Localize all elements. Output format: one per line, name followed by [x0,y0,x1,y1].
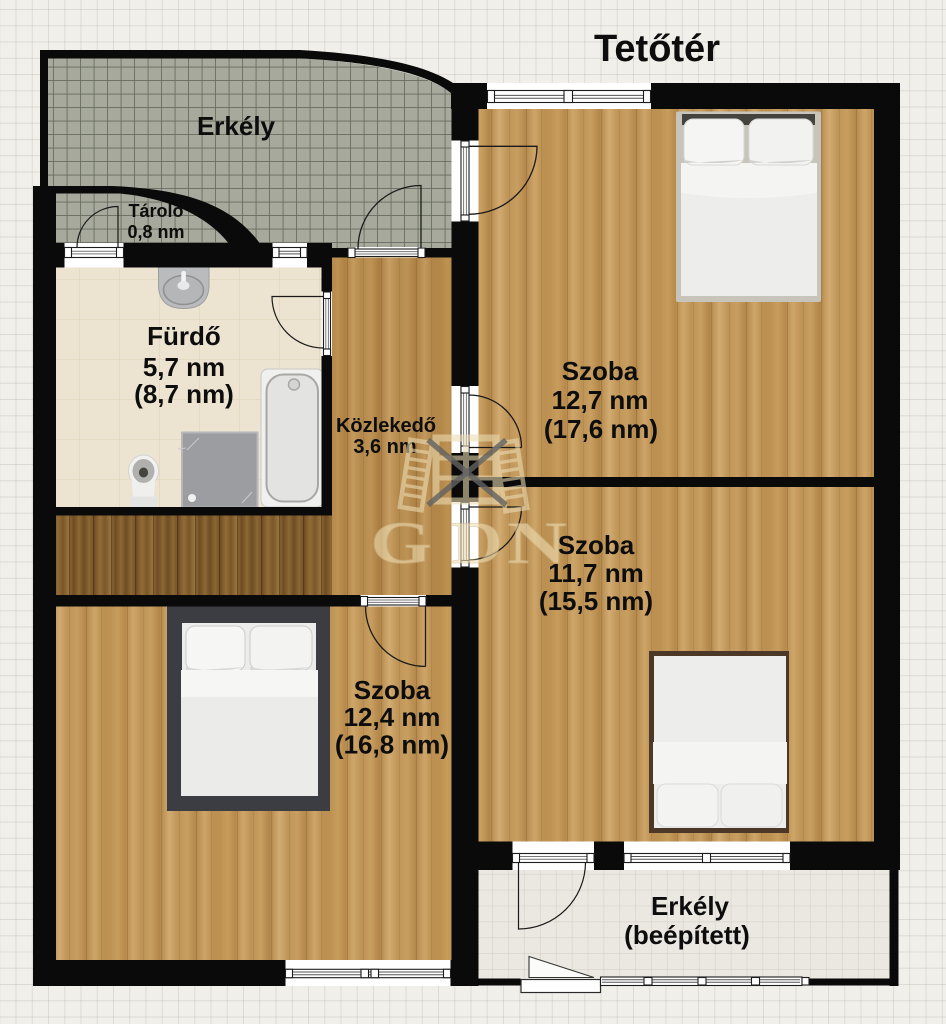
svg-text:Erkély: Erkély [651,891,730,921]
svg-text:0,8 nm: 0,8 nm [127,222,184,242]
svg-text:Szoba: Szoba [354,675,431,705]
svg-text:(beépített): (beépített) [624,920,750,950]
svg-text:(17,6 nm): (17,6 nm) [544,414,658,444]
svg-text:Közlekedő: Közlekedő [336,415,436,437]
svg-text:Erkély: Erkély [197,111,276,141]
svg-text:D: D [451,511,502,577]
svg-text:Tároló: Tároló [128,201,183,221]
svg-text:(16,8 nm): (16,8 nm) [335,730,449,760]
svg-text:Fürdő: Fürdő [147,321,221,351]
svg-text:5,7 nm: 5,7 nm [143,352,225,382]
svg-text:Szoba: Szoba [562,356,639,386]
svg-text:N: N [507,510,567,576]
svg-text:(8,7 nm): (8,7 nm) [134,379,234,409]
svg-text:12,7 nm: 12,7 nm [552,385,649,415]
svg-text:Tetőtér: Tetőtér [594,28,720,70]
svg-text:G: G [370,510,432,577]
svg-text:12,4 nm: 12,4 nm [344,702,441,732]
svg-text:Szoba: Szoba [558,530,635,560]
svg-text:(15,5 nm): (15,5 nm) [539,586,653,616]
